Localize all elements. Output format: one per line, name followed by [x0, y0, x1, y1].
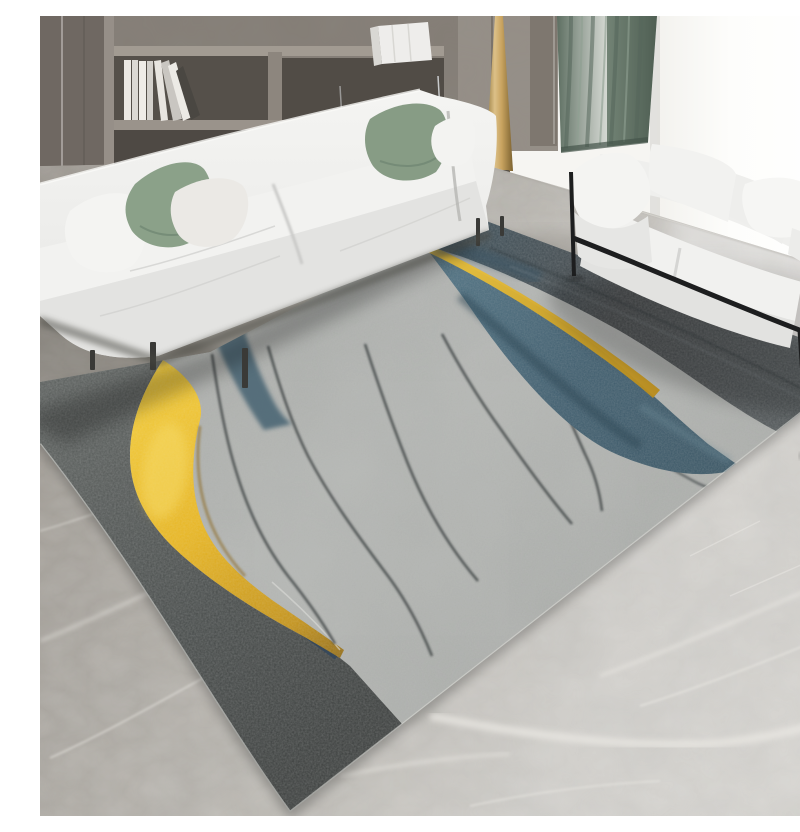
living-room-photo [40, 16, 800, 816]
curtain [557, 16, 657, 153]
pillow-white-right [431, 117, 475, 166]
panel-corner [530, 16, 557, 146]
box-top-right [370, 22, 432, 66]
leg-shadow-left [568, 275, 584, 281]
